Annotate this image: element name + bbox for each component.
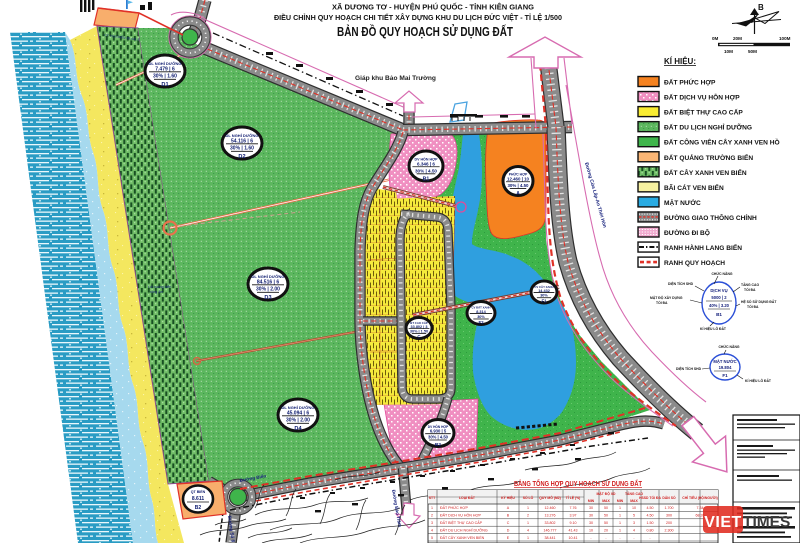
svg-text:D2: D2	[238, 154, 245, 160]
svg-text:ĐẤT DU LỊCH NGHỈ DƯỠNG: ĐẤT DU LỊCH NGHỈ DƯỠNG	[440, 527, 488, 532]
svg-text:VIET: VIET	[704, 514, 742, 531]
svg-text:30: 30	[589, 506, 593, 510]
svg-text:50: 50	[604, 521, 608, 525]
svg-text:30% | 1.60: 30% | 1.60	[153, 74, 177, 80]
svg-text:13.276: 13.276	[545, 514, 556, 518]
svg-text:200: 200	[666, 521, 672, 525]
svg-text:CHỨC NĂNG: CHỨC NĂNG	[718, 344, 739, 349]
svg-text:50: 50	[604, 514, 608, 518]
svg-text:12.460 | 10: 12.460 | 10	[507, 177, 530, 182]
svg-text:RANH QUY HOẠCH: RANH QUY HOẠCH	[664, 260, 725, 267]
svg-text:B2: B2	[195, 505, 202, 511]
svg-text:ĐẤT DỊCH VỤ HỖN HỢP: ĐẤT DỊCH VỤ HỖN HỢP	[440, 513, 482, 518]
svg-text:100M: 100M	[779, 36, 791, 41]
svg-text:1: 1	[527, 536, 529, 540]
svg-text:1: 1	[527, 506, 529, 510]
svg-text:B2: B2	[435, 442, 441, 448]
svg-text:F2: F2	[478, 320, 484, 325]
svg-text:RANH HÀNH LANG BIỂN: RANH HÀNH LANG BIỂN	[664, 243, 742, 252]
svg-text:19.804: 19.804	[719, 365, 732, 370]
svg-text:ĐẤT BIỆT THỰ CAO CẤP: ĐẤT BIỆT THỰ CAO CẤP	[440, 520, 483, 525]
svg-text:TỐI ĐA: TỐI ĐA	[744, 287, 756, 292]
svg-text:MAX: MAX	[630, 499, 638, 503]
svg-text:1: 1	[619, 506, 621, 510]
svg-text:HỆ SỐ SỬ DỤNG ĐẤT: HỆ SỐ SỬ DỤNG ĐẤT	[741, 299, 777, 304]
svg-text:2: 2	[527, 514, 529, 518]
svg-text:CHỈ TIÊU (HỘ/NGƯỜI): CHỈ TIÊU (HỘ/NGƯỜI)	[682, 495, 717, 500]
svg-text:10M: 10M	[724, 49, 733, 54]
svg-text:DL NGHỈ DƯỠNG: DL NGHỈ DƯỠNG	[148, 61, 181, 66]
svg-text:4.50: 4.50	[647, 514, 654, 518]
svg-text:30%: 30%	[477, 315, 485, 319]
svg-text:1: 1	[527, 521, 529, 525]
svg-text:QT BIỂN: QT BIỂN	[191, 489, 206, 494]
svg-text:0.80: 0.80	[647, 528, 654, 532]
svg-text:1: 1	[619, 514, 621, 518]
svg-text:30% | 4.50: 30% | 4.50	[415, 168, 437, 173]
svg-text:KÝ HIỆU: KÝ HIỆU	[501, 495, 515, 500]
svg-text:D4: D4	[294, 426, 302, 432]
svg-text:TỈ LỆ (%): TỈ LỆ (%)	[566, 495, 581, 500]
svg-text:D: D	[507, 528, 510, 532]
svg-text:8.611: 8.611	[192, 496, 204, 502]
svg-text:MẶT NƯỚC: MẶT NƯỚC	[713, 359, 736, 364]
svg-text:3.97: 3.97	[570, 514, 577, 518]
svg-text:D1: D1	[161, 82, 168, 88]
svg-text:B1: B1	[716, 312, 722, 317]
svg-text:ĐƯỜNG GIAO THÔNG CHÍNH: ĐƯỜNG GIAO THÔNG CHÍNH	[664, 213, 757, 222]
svg-text:ĐƯỜNG ĐI BỘ: ĐƯỜNG ĐI BỘ	[664, 228, 710, 237]
svg-text:rộng 4m: rộng 4m	[150, 290, 163, 294]
svg-text:2: 2	[431, 514, 433, 518]
svg-text:F1: F1	[541, 298, 547, 303]
svg-text:12.460: 12.460	[545, 506, 556, 510]
svg-text:40% | 3.20: 40% | 3.20	[709, 303, 730, 308]
svg-text:30% | 2.00: 30% | 2.00	[286, 418, 310, 424]
svg-text:A: A	[516, 191, 520, 197]
svg-text:300: 300	[666, 514, 672, 518]
svg-text:QUY MÔ (M2): QUY MÔ (M2)	[539, 495, 561, 500]
svg-text:7.76: 7.76	[570, 506, 577, 510]
svg-text:30%: 30%	[540, 294, 548, 298]
svg-text:10.41: 10.41	[569, 536, 578, 540]
svg-text:SỐ LÔ: SỐ LÔ	[523, 495, 534, 500]
svg-text:30% | 1.60: 30% | 1.60	[230, 146, 254, 152]
svg-text:DIỆN TÍCH SHD: DIỆN TÍCH SHD	[668, 281, 694, 286]
svg-text:10: 10	[632, 506, 636, 510]
svg-text:TIMES: TIMES	[743, 514, 790, 531]
svg-text:20M: 20M	[733, 36, 742, 41]
svg-text:5: 5	[633, 514, 635, 518]
svg-text:5000 | 2: 5000 | 2	[711, 295, 727, 300]
svg-text:TỐI ĐA: TỐI ĐA	[747, 304, 759, 309]
svg-text:BÃI CÁT VEN BIỂN: BÃI CÁT VEN BIỂN	[664, 183, 724, 192]
svg-text:146.777: 146.777	[544, 528, 557, 532]
svg-text:KÍ HIỆU LÔ ĐẤT: KÍ HIỆU LÔ ĐẤT	[745, 378, 772, 383]
svg-text:3: 3	[633, 521, 635, 525]
svg-text:1: 1	[431, 506, 433, 510]
svg-text:6.930 | 5: 6.930 | 5	[430, 429, 447, 434]
svg-text:DL NGHỈ DƯỠNG: DL NGHỈ DƯỠNG	[225, 133, 258, 138]
svg-text:5: 5	[431, 536, 433, 540]
svg-text:50: 50	[604, 506, 608, 510]
svg-text:4: 4	[431, 528, 433, 532]
svg-text:F1: F1	[722, 373, 728, 378]
svg-text:MẶT NƯỚC: MẶT NƯỚC	[664, 198, 701, 207]
svg-text:BẢN ĐỒ QUY HOẠCH SỬ DỤNG ĐẤT: BẢN ĐỒ QUY HOẠCH SỬ DỤNG ĐẤT	[337, 24, 513, 39]
svg-text:MẬT ĐỘ XÂY DỰNG: MẬT ĐỘ XÂY DỰNG	[650, 295, 683, 300]
svg-text:1: 1	[619, 528, 621, 532]
svg-text:9.10: 9.10	[570, 521, 577, 525]
svg-text:20: 20	[604, 528, 608, 532]
svg-text:MIN: MIN	[588, 499, 595, 503]
svg-text:DỊCH VỤ: DỊCH VỤ	[710, 288, 727, 293]
svg-text:D3: D3	[264, 295, 271, 301]
svg-text:30: 30	[589, 514, 593, 518]
svg-text:4: 4	[527, 528, 529, 532]
svg-text:C: C	[507, 521, 510, 525]
svg-text:0M: 0M	[712, 36, 719, 41]
svg-text:DIỆN TÍCH SHD: DIỆN TÍCH SHD	[676, 366, 702, 371]
svg-text:DV HỖN HỢP: DV HỖN HỢP	[414, 156, 438, 161]
svg-text:TẦNG CAO: TẦNG CAO	[741, 283, 759, 287]
svg-text:ĐẤT PHỨC HỢP: ĐẤT PHỨC HỢP	[440, 505, 468, 510]
svg-text:DL NGHỈ DƯỠNG: DL NGHỈ DƯỠNG	[281, 405, 314, 410]
svg-text:CHỨC NĂNG: CHỨC NĂNG	[711, 271, 732, 276]
svg-text:30% | 2.00: 30% | 2.00	[256, 287, 280, 293]
svg-text:4: 4	[633, 528, 635, 532]
svg-text:30% | 1.50: 30% | 1.50	[410, 329, 428, 333]
svg-text:8.314: 8.314	[476, 310, 486, 314]
svg-text:HSSD TỐI ĐA: HSSD TỐI ĐA	[639, 495, 661, 500]
svg-text:Lối xuống biển: Lối xuống biển	[148, 285, 171, 289]
svg-text:2.300: 2.300	[665, 528, 674, 532]
svg-text:Giáp khu Bảo Mai Trường: Giáp khu Bảo Mai Trường	[355, 75, 436, 82]
svg-text:30: 30	[589, 521, 593, 525]
svg-text:1: 1	[619, 521, 621, 525]
svg-text:6.346 | 6: 6.346 | 6	[417, 162, 435, 167]
svg-text:10: 10	[589, 528, 593, 532]
svg-text:41.43: 41.43	[569, 528, 578, 532]
svg-text:B1: B1	[423, 176, 430, 182]
svg-text:TỐI ĐA: TỐI ĐA	[656, 300, 668, 305]
svg-text:KÍ HIỆU:: KÍ HIỆU:	[664, 57, 696, 66]
svg-text:MAX: MAX	[602, 499, 610, 503]
svg-text:50M: 50M	[748, 49, 757, 54]
svg-text:STT: STT	[429, 496, 436, 500]
svg-text:B: B	[758, 3, 764, 12]
svg-text:KÍ HIỆU LÔ ĐẤT: KÍ HIỆU LÔ ĐẤT	[700, 326, 727, 331]
svg-text:LOẠI ĐẤT: LOẠI ĐẤT	[459, 496, 476, 500]
svg-text:ĐẤT CÂY XANH VEN BIỂN: ĐẤT CÂY XANH VEN BIỂN	[440, 535, 485, 540]
svg-text:30% | 4.50: 30% | 4.50	[507, 183, 529, 188]
svg-text:DL NGHỈ DƯỠNG: DL NGHỈ DƯỠNG	[251, 274, 284, 279]
svg-text:38.441: 38.441	[545, 536, 556, 540]
svg-text:3: 3	[431, 521, 433, 525]
svg-text:MIN: MIN	[617, 499, 624, 503]
svg-text:MẬT ĐỘ XD: MẬT ĐỘ XD	[596, 491, 616, 496]
svg-text:1.50: 1.50	[647, 521, 654, 525]
svg-text:4.50: 4.50	[647, 506, 654, 510]
svg-text:1.700: 1.700	[665, 506, 674, 510]
svg-text:7.34: 7.34	[697, 506, 704, 510]
svg-text:33.802: 33.802	[545, 521, 556, 525]
svg-text:30% | 4.50: 30% | 4.50	[428, 435, 449, 440]
svg-text:DÂN SỐ: DÂN SỐ	[662, 495, 676, 500]
